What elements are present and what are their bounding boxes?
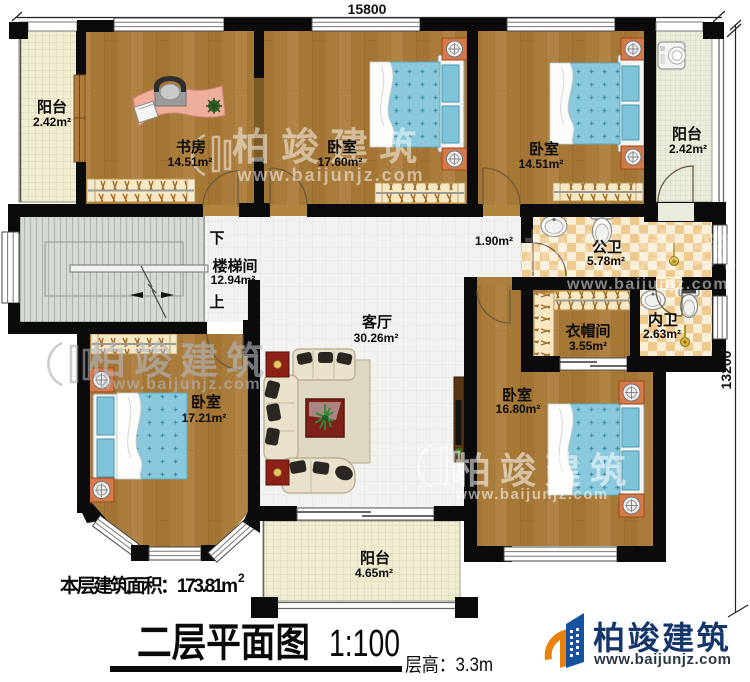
svg-text:柏竣建筑: 柏竣建筑 <box>524 228 748 277</box>
svg-text:www.baijunjz.com: www.baijunjz.com <box>566 276 729 293</box>
svg-text:14.51m²: 14.51m² <box>519 157 564 171</box>
svg-text:1:100: 1:100 <box>329 623 400 665</box>
svg-text:本层建筑面积：173.81m: 本层建筑面积：173.81m <box>60 574 238 597</box>
svg-text:www.baijunjz.com: www.baijunjz.com <box>98 376 261 393</box>
svg-text:二层平面图: 二层平面图 <box>137 621 310 665</box>
svg-text:4.65m²: 4.65m² <box>355 566 393 580</box>
svg-text:柏竣建筑: 柏竣建筑 <box>455 450 635 491</box>
svg-text:卧室: 卧室 <box>529 140 559 158</box>
svg-text:层高：3.3m: 层高：3.3m <box>405 654 493 676</box>
svg-text:卧室: 卧室 <box>191 393 221 411</box>
svg-text:书房: 书房 <box>176 138 206 156</box>
svg-text:15800: 15800 <box>348 1 387 17</box>
svg-text:2.63m²: 2.63m² <box>643 327 681 341</box>
svg-text:30.26m²: 30.26m² <box>354 331 399 345</box>
svg-text:2.42m²: 2.42m² <box>33 115 71 129</box>
svg-text:5.78m²: 5.78m² <box>587 254 625 268</box>
svg-text:2.42m²: 2.42m² <box>669 142 707 156</box>
svg-text:www.baijunjz.com: www.baijunjz.com <box>454 486 608 503</box>
svg-text:3.55m²: 3.55m² <box>569 339 607 353</box>
svg-text:2: 2 <box>238 571 245 585</box>
svg-text:阳台: 阳台 <box>360 549 390 567</box>
svg-text:阳台: 阳台 <box>672 125 702 143</box>
svg-text:阳台: 阳台 <box>37 98 67 116</box>
svg-text:www.baijunjz.com: www.baijunjz.com <box>593 651 731 668</box>
svg-text:卧室: 卧室 <box>327 138 357 156</box>
svg-text:14.51m²: 14.51m² <box>168 155 213 169</box>
svg-text:衣帽间: 衣帽间 <box>565 322 610 340</box>
svg-text:1.90m²: 1.90m² <box>475 234 513 248</box>
svg-text:下: 下 <box>209 230 224 247</box>
svg-text:上: 上 <box>209 294 224 311</box>
svg-text:17.21m²: 17.21m² <box>182 411 227 425</box>
svg-text:12.94m²: 12.94m² <box>211 273 256 287</box>
svg-text:16.80m²: 16.80m² <box>496 402 541 416</box>
svg-text:17.60m²: 17.60m² <box>318 155 363 169</box>
svg-text:客厅: 客厅 <box>361 313 392 331</box>
